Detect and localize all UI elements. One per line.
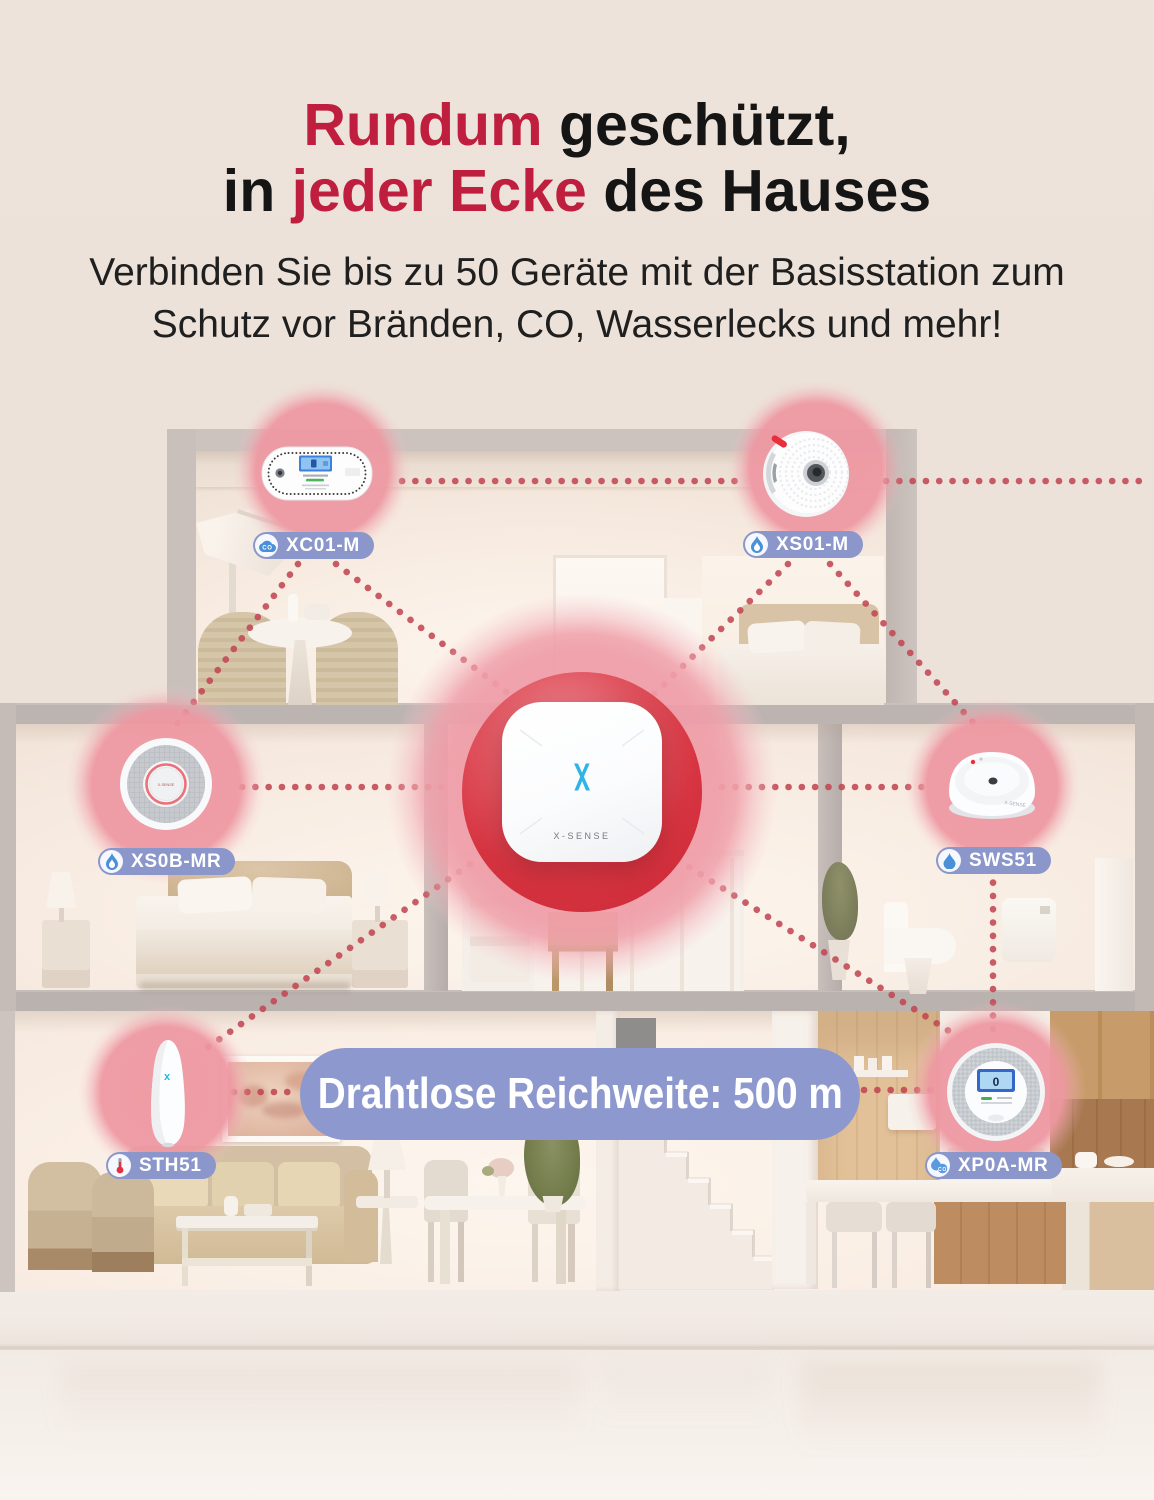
svg-text:x: x <box>164 1071 171 1083</box>
svg-text:CO: CO <box>938 1167 947 1173</box>
svg-text:0: 0 <box>993 1075 1000 1089</box>
svg-text:X-SENSE: X-SENSE <box>158 783 175 787</box>
svg-text:CO: CO <box>262 546 272 552</box>
